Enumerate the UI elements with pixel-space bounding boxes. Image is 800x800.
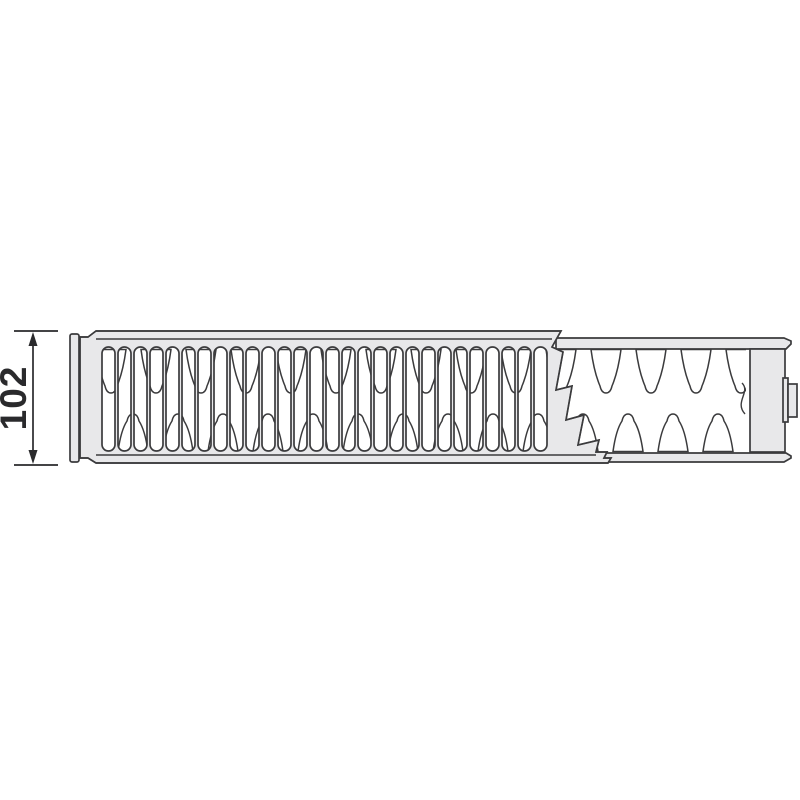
- dimension-arrowhead-up: [29, 332, 38, 346]
- fin-bottom-tongue: [703, 414, 733, 452]
- right-end-panel: [750, 349, 785, 452]
- fin-top-tongue: [636, 350, 666, 394]
- connection-stub: [788, 384, 797, 417]
- left-end-cap: [70, 334, 79, 462]
- diagram-canvas: 102: [0, 0, 800, 800]
- fin-top-tongue: [591, 350, 621, 394]
- radiator-dimension-diagram: 102: [0, 0, 800, 800]
- rear-top-rail: [556, 338, 791, 349]
- fin-bottom-tongue: [658, 414, 688, 452]
- dimension-label: 102: [0, 366, 34, 431]
- fin-bottom-tongue: [613, 414, 643, 452]
- dimension-annotation: 102: [0, 331, 58, 465]
- fin-top-tongue: [681, 350, 711, 394]
- dimension-arrowhead-down: [29, 450, 38, 464]
